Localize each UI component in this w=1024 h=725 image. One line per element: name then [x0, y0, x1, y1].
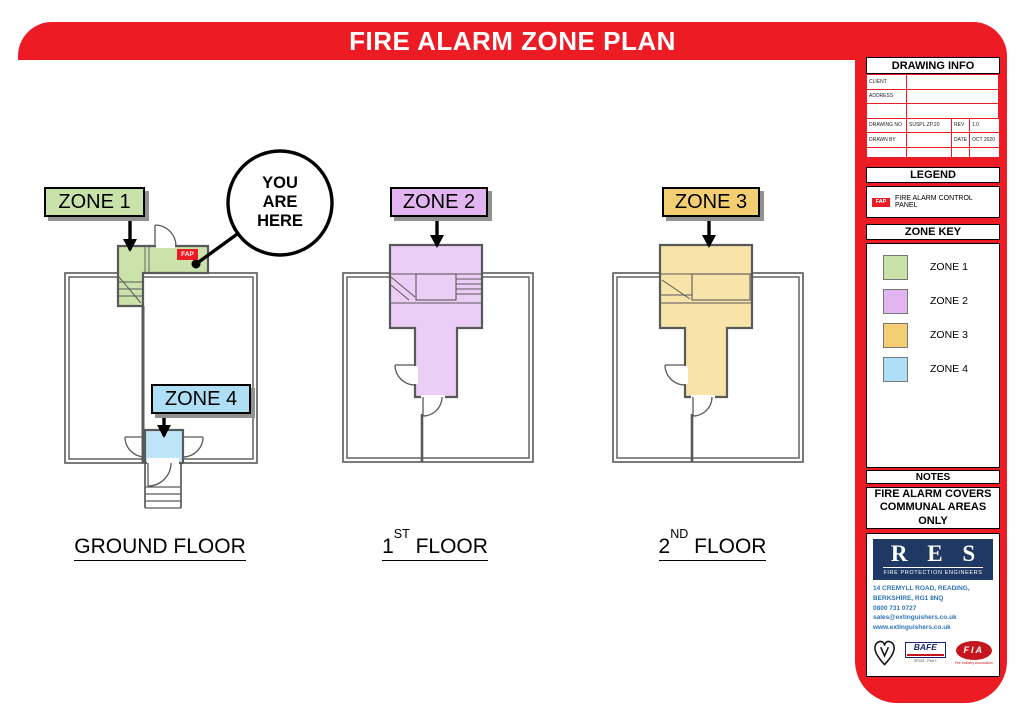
table-row: ADDRESS	[867, 90, 999, 105]
res-logo: R E S FIRE PROTECTION ENGINEERS	[873, 539, 993, 580]
drawing-no-value: SUSPL.ZP.20	[907, 119, 952, 133]
zone-2-label: ZONE 2	[390, 187, 488, 217]
zone-key-label: ZONE 4	[930, 363, 968, 375]
table-cell-empty	[867, 148, 907, 162]
logo-divider	[883, 567, 983, 568]
table-row	[867, 104, 999, 119]
zone-key-label: ZONE 2	[930, 295, 968, 307]
notes-body: FIRE ALARM COVERS COMMUNAL AREAS ONLY	[866, 487, 1000, 529]
bafe-text: BAFE	[907, 643, 943, 652]
zone-key-item: ZONE 2	[883, 288, 999, 314]
table-cell-empty	[970, 148, 999, 162]
caption-sup: ST	[394, 527, 410, 541]
email-address: sales@extinguishers.co.uk	[873, 613, 993, 623]
certification-logos: BAFE SP203 - Part 1 FIA Fire Industry As…	[873, 639, 993, 667]
caption-text: FLOOR	[688, 535, 766, 558]
address-line: BERKSHIRE, RG1 8NQ	[873, 594, 993, 604]
rev-value: 1.0	[970, 119, 999, 133]
caption-text: 2	[659, 535, 671, 558]
first-floor-caption: 1ST FLOOR	[370, 534, 500, 559]
zone-key-body: ZONE 1 ZONE 2 ZONE 3 ZONE 4	[866, 243, 1000, 468]
you-are-here-line: ARE	[244, 193, 316, 212]
client-label: CLIENT	[867, 75, 907, 89]
fia-subtext: Fire Industry Association	[955, 661, 993, 665]
table-cell-empty	[907, 148, 952, 162]
zone-2-swatch	[883, 289, 908, 314]
caption-sup: ND	[670, 527, 688, 541]
zone-3-label: ZONE 3	[662, 187, 760, 217]
zone-4-label: ZONE 4	[151, 384, 251, 414]
ground-floor-plan	[65, 225, 257, 508]
legend-body: FAP FIRE ALARM CONTROL PANEL	[866, 186, 1000, 218]
company-name: R E S	[873, 542, 993, 566]
zone-3-swatch	[883, 323, 908, 348]
caption-text: 1	[382, 535, 394, 558]
drawn-by-label: DRAWN BY	[867, 133, 907, 147]
client-value	[907, 75, 999, 89]
date-label: DATE	[952, 133, 970, 147]
company-tagline: FIRE PROTECTION ENGINEERS	[873, 570, 993, 576]
zone-key-item: ZONE 1	[883, 254, 999, 280]
zone-key-header: ZONE KEY	[866, 224, 1000, 240]
you-are-here-text: YOU ARE HERE	[244, 174, 316, 231]
ground-floor-caption: GROUND FLOOR	[70, 534, 250, 559]
phone-number: 0800 731 0727	[873, 604, 993, 614]
bafe-subtext: SP203 - Part 1	[905, 659, 945, 663]
zone-key-label: ZONE 1	[930, 261, 968, 273]
table-row: DRAWN BY DATE OCT 2020	[867, 133, 999, 148]
table-cell-empty	[952, 148, 970, 162]
legend-item-label: FIRE ALARM CONTROL PANEL	[895, 195, 994, 209]
notes-header: NOTES	[866, 470, 1000, 484]
company-info-box: R E S FIRE PROTECTION ENGINEERS 14 CREMY…	[866, 533, 1000, 677]
address-line: 14 CREMYLL ROAD, READING,	[873, 584, 993, 594]
bafe-logo: BAFE SP203 - Part 1	[905, 642, 945, 663]
table-row	[867, 148, 999, 162]
you-are-here-line: YOU	[244, 174, 316, 193]
fap-legend-icon: FAP	[872, 198, 890, 207]
website-url: www.extinguishers.co.uk	[873, 623, 993, 633]
table-row: CLIENT	[867, 75, 999, 90]
second-floor-plan	[613, 245, 803, 462]
rev-label: REV	[952, 119, 970, 133]
zone-1-swatch	[883, 255, 908, 280]
address-label: ADDRESS	[867, 90, 907, 104]
zone-key-item: ZONE 3	[883, 322, 999, 348]
fap-badge: FAP	[177, 249, 198, 260]
date-value: OCT 2020	[970, 133, 999, 147]
company-address: 14 CREMYLL ROAD, READING, BERKSHIRE, RG1…	[873, 584, 993, 633]
table-row: DRAWING NO SUSPL.ZP.20 REV 1.0	[867, 119, 999, 134]
first-floor-plan	[343, 245, 533, 462]
table-cell-empty	[867, 104, 907, 118]
you-are-here-line: HERE	[244, 212, 316, 231]
drawing-info-table: CLIENT ADDRESS DRAWING NO SUSPL.ZP.20 RE…	[866, 74, 1000, 158]
fia-logo: FIA Fire Industry Association	[955, 641, 993, 665]
zone-4-swatch	[883, 357, 908, 382]
drawing-info-header: DRAWING INFO	[866, 57, 1000, 74]
zone-1-label: ZONE 1	[44, 187, 145, 217]
table-cell-empty	[907, 104, 999, 118]
fire-alarm-zone-plan-page: FIRE ALARM ZONE PLAN	[0, 0, 1024, 725]
caption-text: GROUND FLOOR	[74, 535, 246, 558]
bafe-bar	[907, 654, 943, 657]
legend-header: LEGEND	[866, 167, 1000, 183]
fia-oval: FIA	[956, 641, 992, 660]
drawing-no-label: DRAWING NO	[867, 119, 907, 133]
second-floor-caption: 2ND FLOOR	[645, 534, 780, 559]
bafe-box: BAFE	[905, 642, 945, 658]
kitemark-icon	[873, 639, 896, 667]
zone-key-item: ZONE 4	[883, 356, 999, 382]
zone-key-label: ZONE 3	[930, 329, 968, 341]
address-value	[907, 90, 999, 104]
drawn-by-value	[907, 133, 952, 147]
caption-text: FLOOR	[410, 535, 488, 558]
